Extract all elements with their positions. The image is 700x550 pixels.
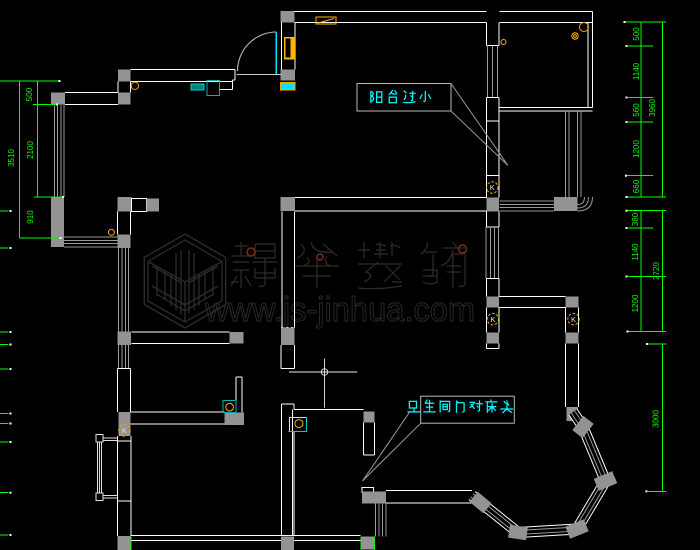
svg-text:K: K [490,315,495,324]
svg-text:380: 380 [631,212,640,226]
svg-text:3000: 3000 [652,410,661,428]
svg-text:500: 500 [25,87,34,101]
svg-text:560: 560 [632,103,641,117]
svg-text:500: 500 [632,27,641,41]
svg-text:K: K [571,315,576,324]
svg-text:3960: 3960 [648,99,657,117]
svg-text:K: K [490,183,495,192]
svg-text:2100: 2100 [26,141,35,159]
svg-text:www.js-jinhua.com: www.js-jinhua.com [204,291,475,329]
svg-text:1200: 1200 [631,294,640,312]
svg-text:K: K [122,426,127,435]
svg-text:3510: 3510 [7,149,16,167]
svg-text:1140: 1140 [632,62,641,80]
svg-text:660: 660 [632,179,641,193]
svg-text:1200: 1200 [632,140,641,158]
svg-text:2720: 2720 [652,262,661,280]
svg-text:1140: 1140 [631,243,640,261]
svg-text:910: 910 [26,210,35,224]
